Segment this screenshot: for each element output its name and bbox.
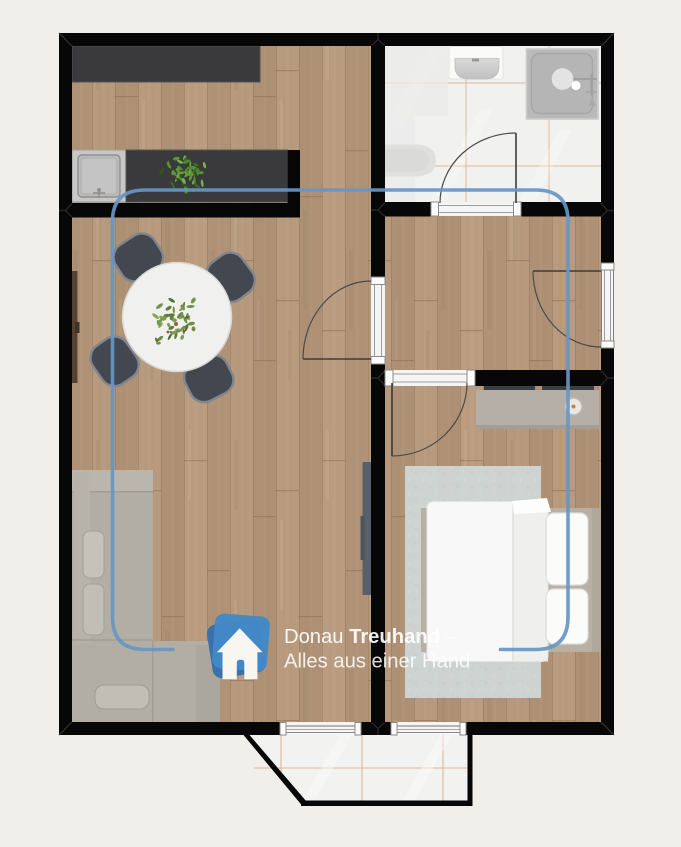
svg-text:Alles aus einer Hand: Alles aus einer Hand xyxy=(284,651,470,673)
svg-text:Donau Treuhand –: Donau Treuhand – xyxy=(284,626,458,648)
